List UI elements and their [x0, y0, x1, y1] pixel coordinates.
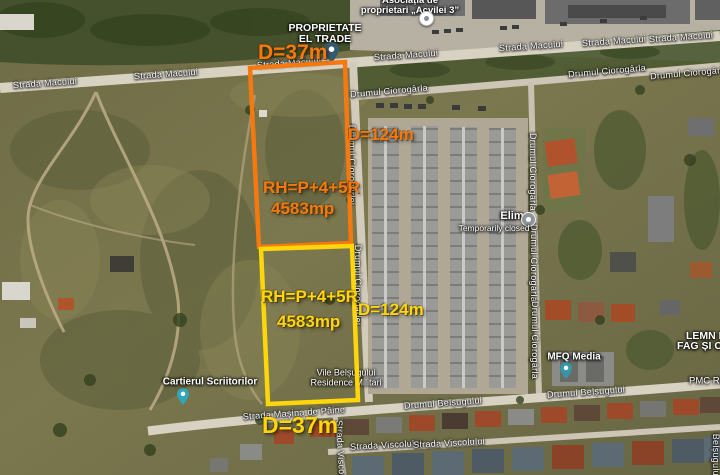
street-label-strada-macului: Strada Macului [134, 67, 199, 81]
annotation-area: 4583mp [261, 310, 358, 335]
street-label-strada-macului: Strada Macului [13, 76, 78, 90]
street-label-drumul-ciorogarla: Drumul Ciorogârla [650, 65, 720, 82]
street-label-strada-macului: Strada Macului [582, 34, 647, 48]
street-label-drumul-ciorogarla: Drumul Ciorogârla [568, 63, 647, 80]
street-label-drumul-belsugului: Drumul Belșugului [547, 384, 626, 399]
poi-label-vile-belsugului: Vile Belșugului Residence Militari [310, 369, 381, 388]
street-label-strada-macului: Strada Macului [649, 30, 714, 44]
annotation-plot-top-regime: RH=P+4+5R 4583mp [263, 177, 360, 220]
satellite-map[interactable]: Strada Macului Strada Macului Strada Mac… [0, 0, 720, 475]
street-label-strada-macului: Strada Macului [499, 39, 564, 53]
poi-label-cartierul-scriitorilor: Cartierul Scriitorilor [163, 377, 257, 388]
poi-label-mfq-media: MFQ Media [547, 352, 600, 363]
street-label-belsugului-vertical: Belșugului [711, 434, 720, 475]
street-label-drumul-ciorogarla: Drumul Ciorogârla [350, 83, 429, 100]
annotation-dim-bottom-length: D=124m [358, 299, 424, 320]
poi-label-association: Asociația de proprietari „Acvilei 3” [361, 0, 459, 16]
annotation-area: 4583mp [263, 198, 360, 219]
street-label-drumul-ciorogarla-vertical: Drumul Ciorogârla [530, 301, 540, 379]
association-poi-pin-icon[interactable] [419, 11, 434, 26]
annotation-height-regime: RH=P+4+5R [263, 177, 360, 198]
annotation-height-regime: RH=P+4+5R [261, 285, 358, 310]
poi-status-elim: Temporarily closed [459, 223, 530, 233]
cartierul-scriitorilor-pin-icon[interactable] [177, 388, 189, 405]
street-label-strada-macului: Strada Macului [374, 48, 439, 62]
street-label-drumul-ciorogarla-vertical: Drumul Ciorogârla [529, 224, 539, 302]
poi-label-pmc: PMC Rom [689, 376, 720, 387]
mfq-media-pin-icon[interactable] [560, 362, 572, 379]
street-label-strada-viscolului: Strada Viscolului [413, 436, 485, 450]
poi-label-lemn: FAG ȘI CAR [677, 340, 720, 352]
annotation-dim-top-width: D=37m [258, 40, 327, 66]
annotation-dim-top-length: D=124m [348, 124, 414, 145]
street-label-drumul-ciorogarla-vertical: Drumul Ciorogârla [528, 133, 538, 211]
annotation-dim-bottom-width: D=37m [262, 411, 338, 440]
street-label-strada-viscolului: Strada Viscolului [350, 438, 422, 452]
street-label-drumul-belsugului: Drumul Belșugului [404, 395, 483, 410]
annotation-plot-bottom-regime: RH=P+4+5R 4583mp [261, 285, 358, 334]
